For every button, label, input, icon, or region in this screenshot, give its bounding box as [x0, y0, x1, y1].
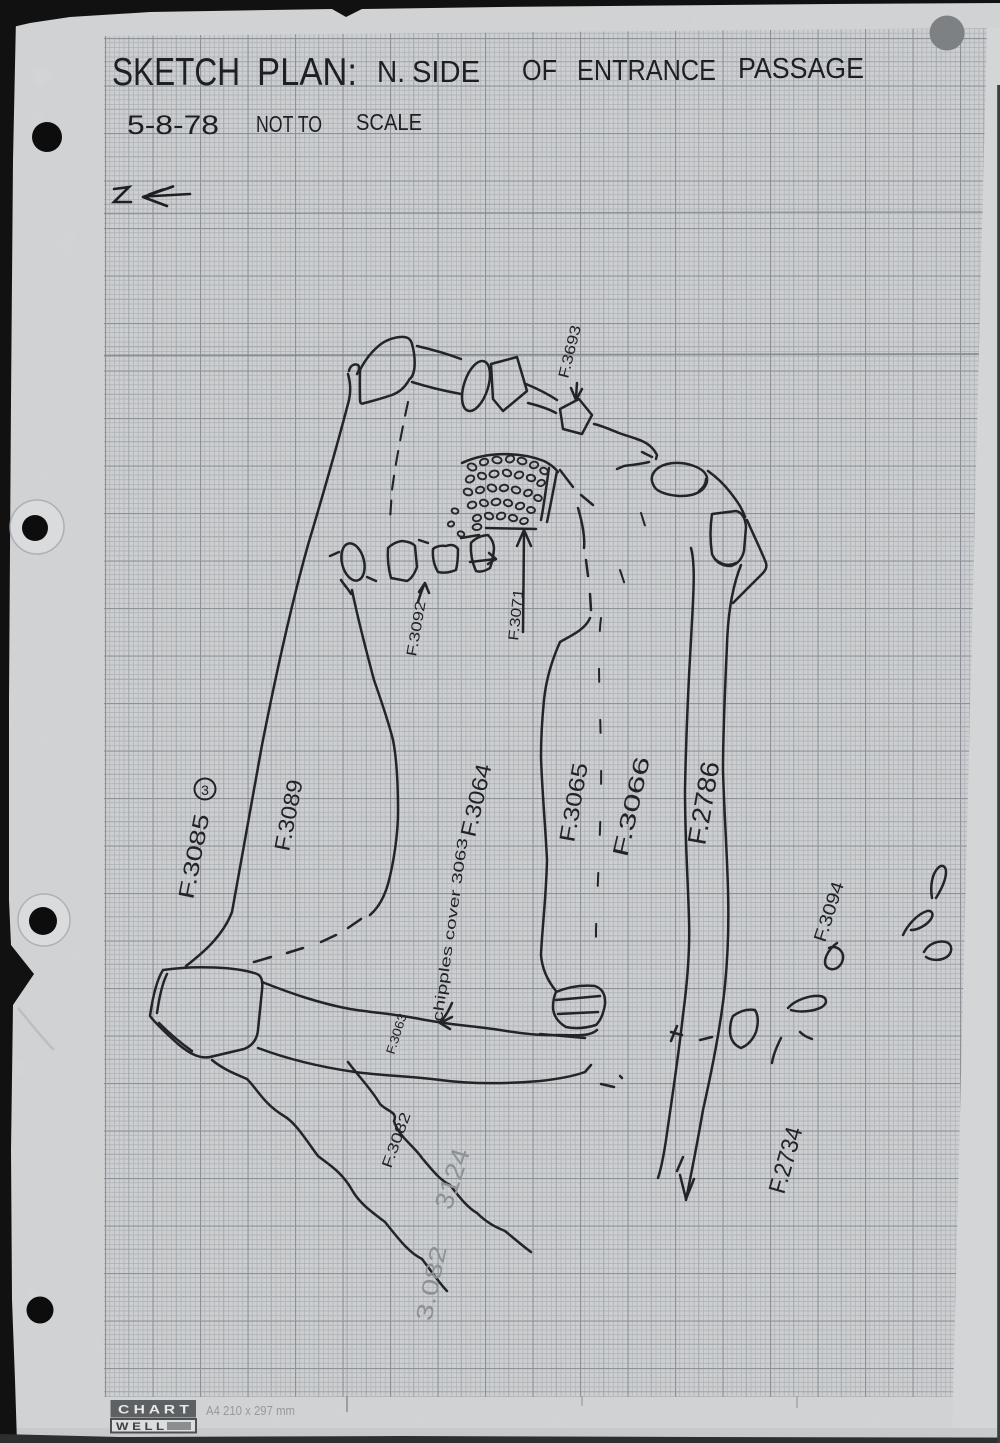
svg-text:SCALE: SCALE — [356, 109, 422, 135]
svg-text:W E L L: W E L L — [116, 1421, 164, 1433]
svg-text:A4 210 x 297 mm: A4 210 x 297 mm — [206, 1404, 295, 1418]
svg-text:SKETCH: SKETCH — [112, 51, 240, 94]
svg-text:5-8-78: 5-8-78 — [127, 110, 219, 140]
svg-text:C H A R T: C H A R T — [118, 1403, 190, 1417]
svg-text:3: 3 — [201, 782, 209, 798]
svg-text:PASSAGE: PASSAGE — [738, 53, 864, 85]
svg-text:OF: OF — [522, 55, 557, 87]
svg-text:PLAN:: PLAN: — [257, 51, 357, 94]
svg-text:N.: N. — [377, 54, 405, 89]
svg-text:SIDE: SIDE — [412, 54, 480, 89]
svg-text:NOT TO: NOT TO — [256, 111, 322, 137]
svg-text:ENTRANCE: ENTRANCE — [577, 55, 716, 87]
